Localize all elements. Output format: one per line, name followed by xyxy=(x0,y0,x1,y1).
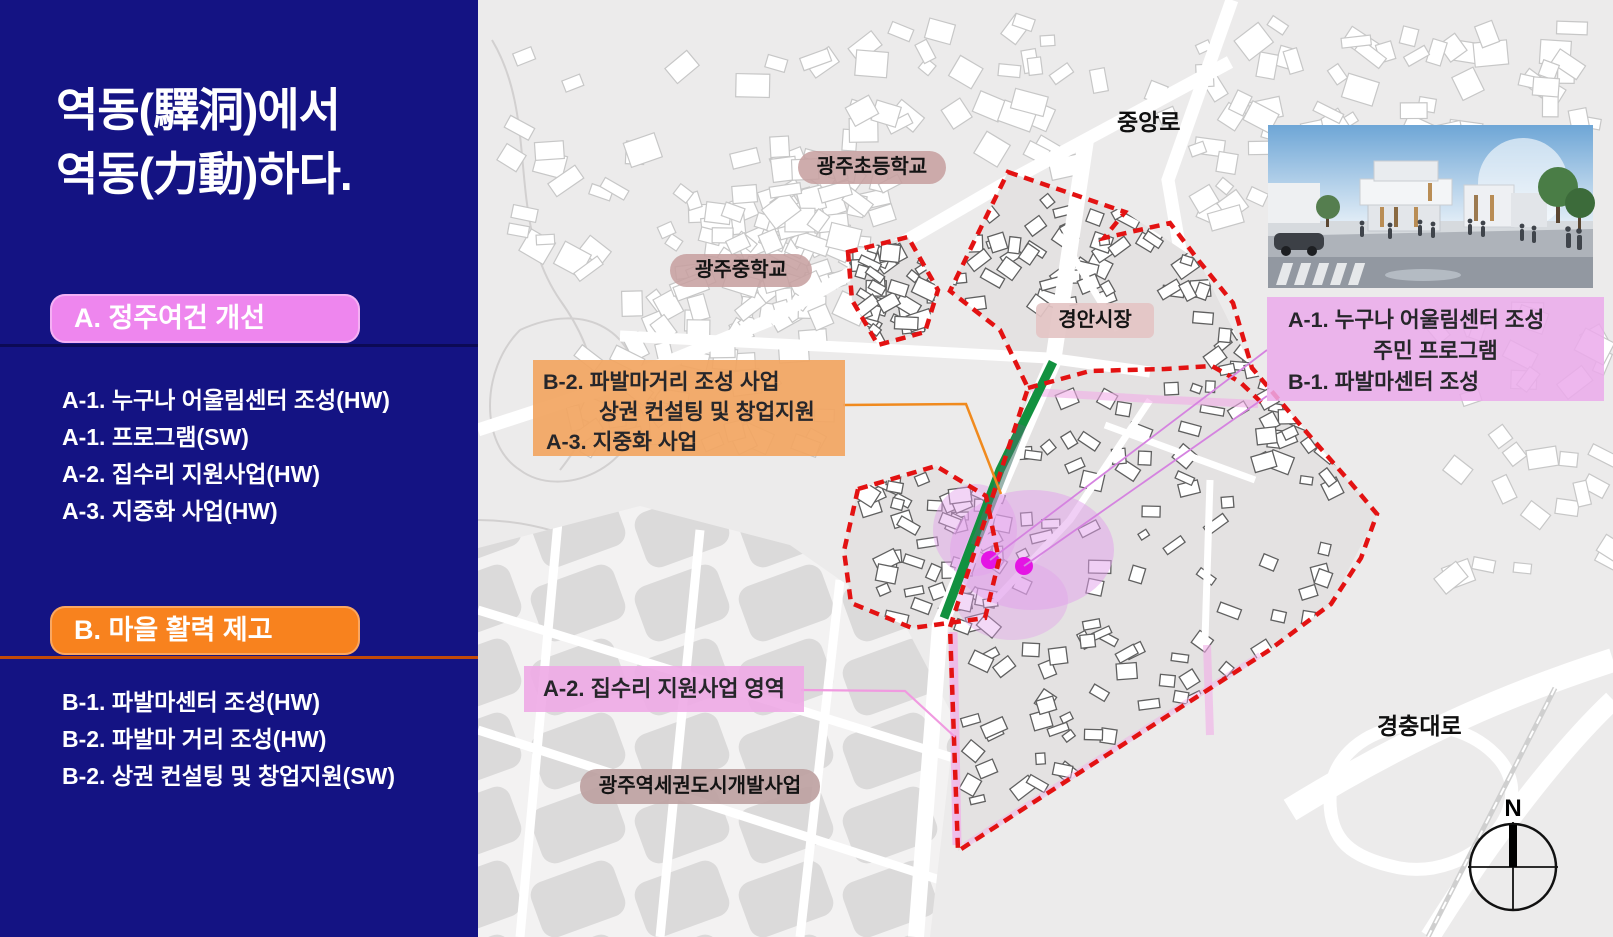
callout-street-project: B-2. 파발마거리 조성 사업 상권 컨설팅 및 창업지원 A-3. 지중화 … xyxy=(533,360,845,456)
section-a-list: A-1. 누구나 어울림센터 조성(HW) A-1. 프로그램(SW) A-2.… xyxy=(62,382,390,530)
road-label-jungang: 중앙로 xyxy=(1117,103,1180,137)
list-item-b2-sw: B-2. 상권 컨설팅 및 창업지원(SW) xyxy=(62,758,395,795)
callout-repair-area: A-2. 집수리 지원사업 영역 xyxy=(524,666,804,712)
list-item-a2: A-2. 집수리 지원사업(HW) xyxy=(62,456,390,493)
list-item-a1-sw: A-1. 프로그램(SW) xyxy=(62,419,390,456)
list-item-b1: B-1. 파발마센터 조성(HW) xyxy=(62,684,395,721)
section-b-list: B-1. 파발마센터 조성(HW) B-2. 파발마 거리 조성(HW) B-2… xyxy=(62,684,395,795)
title-line-1: 역동(驛洞)에서 xyxy=(56,78,352,142)
compass-n-label: N xyxy=(1504,795,1521,822)
section-b-header: B. 마을 활력 제고 xyxy=(50,606,360,655)
label-middle-school: 광주중학교 xyxy=(670,254,812,287)
road-label-gyeongchung: 경충대로 xyxy=(1377,707,1462,741)
title-line-2: 역동(力動)하다. xyxy=(56,142,352,206)
callout-line: 주민 프로그램 xyxy=(1267,336,1604,367)
callout-line: A-3. 지중화 사업 xyxy=(546,427,845,457)
callout-line: B-2. 파발마거리 조성 사업 xyxy=(543,367,845,397)
list-item-b2: B-2. 파발마 거리 조성(HW) xyxy=(62,721,395,758)
label-station-development: 광주역세권도시개발사업 xyxy=(580,769,820,804)
architectural-rendering xyxy=(1268,125,1595,288)
list-item-a3: A-3. 지중화 사업(HW) xyxy=(62,493,390,530)
callout-line: A-1. 누구나 어울림센터 조성 xyxy=(1288,305,1604,336)
divider-section-a xyxy=(0,344,478,347)
list-item-a1: A-1. 누구나 어울림센터 조성(HW) xyxy=(62,382,390,419)
callout-line: B-1. 파발마센터 조성 xyxy=(1288,367,1604,398)
label-elementary-school: 광주초등학교 xyxy=(798,151,946,184)
divider-section-b xyxy=(0,656,478,659)
sidebar: 역동(驛洞)에서 역동(力動)하다. A. 정주여건 개선 A-1. 누구나 어… xyxy=(0,0,478,937)
section-a-header: A. 정주여건 개선 xyxy=(50,294,360,343)
slide: 역동(驛洞)에서 역동(力動)하다. A. 정주여건 개선 A-1. 누구나 어… xyxy=(0,0,1613,937)
label-market: 경안시장 xyxy=(1036,303,1154,338)
map-area: N xyxy=(478,0,1613,937)
callout-line: 상권 컨설팅 및 창업지원 xyxy=(599,397,845,427)
page-title: 역동(驛洞)에서 역동(力動)하다. xyxy=(56,78,352,206)
callout-center-projects: A-1. 누구나 어울림센터 조성 주민 프로그램 B-1. 파발마센터 조성 xyxy=(1267,297,1604,401)
